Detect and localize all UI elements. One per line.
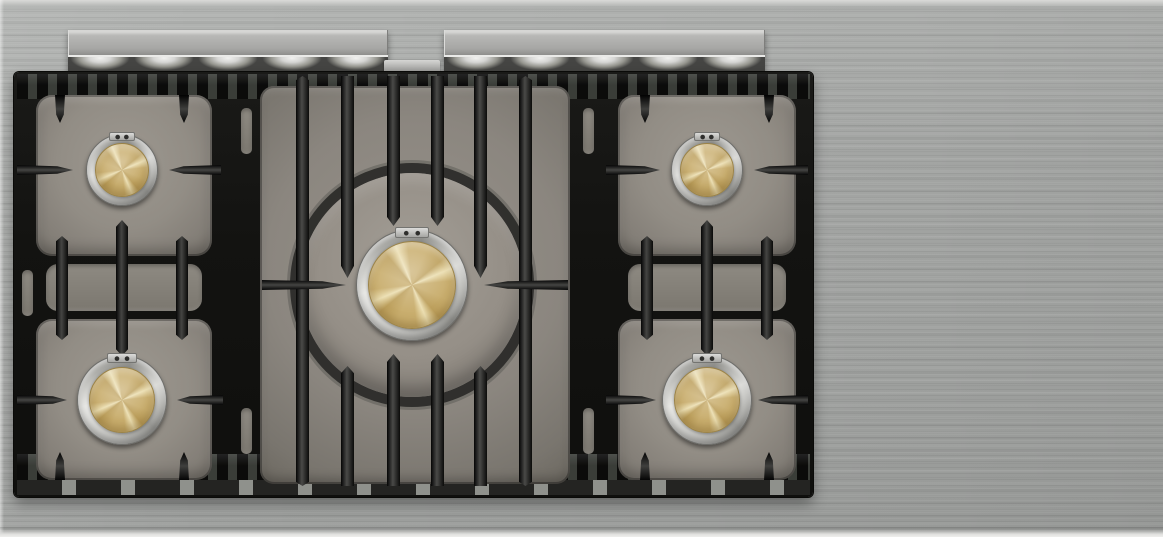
grate-slot — [583, 408, 594, 454]
grate-bar — [341, 366, 354, 486]
brass-cap — [680, 143, 734, 197]
grate-slot — [241, 408, 252, 454]
grate-bar — [474, 366, 487, 486]
left-bevel-edge — [0, 0, 4, 537]
grate-bar — [56, 236, 68, 340]
burner-cap-front-right — [662, 355, 752, 445]
grate-bar — [641, 236, 653, 340]
igniter-bracket — [395, 227, 429, 238]
bottom-bevel-edge — [0, 527, 1163, 537]
burner-cap-center — [356, 229, 468, 341]
brass-cap — [368, 241, 456, 329]
igniter-bracket — [109, 132, 135, 141]
grate-bar — [387, 76, 400, 226]
rail-scallop-edge — [444, 55, 765, 73]
rail-face — [444, 30, 765, 55]
back-rail-right — [444, 30, 765, 73]
brass-cap — [674, 367, 740, 433]
back-rail-left — [68, 30, 388, 73]
rail-face — [68, 30, 388, 55]
grate-bar — [431, 354, 444, 486]
grate-bar — [474, 76, 487, 278]
igniter-bracket — [107, 353, 137, 363]
igniter-bracket — [692, 353, 722, 363]
burner-cap-rear-left — [86, 134, 158, 206]
grate-bar — [116, 220, 128, 356]
brass-cap — [95, 143, 149, 197]
grate-slot — [241, 108, 252, 154]
burner-cap-front-left — [77, 355, 167, 445]
cooktop-photo — [0, 0, 1163, 537]
top-bevel-edge — [0, 0, 1163, 6]
grate-bar — [387, 354, 400, 486]
grate-bar — [341, 76, 354, 278]
grate-bar — [431, 76, 444, 226]
brass-cap — [89, 367, 155, 433]
grate-bar — [701, 220, 713, 356]
grate-bar — [176, 236, 188, 340]
grate-bar — [761, 236, 773, 340]
burner-cap-rear-right — [671, 134, 743, 206]
igniter-bracket — [694, 132, 720, 141]
rail-scallop-edge — [68, 55, 388, 73]
grate-slot — [583, 108, 594, 154]
grate-slot — [22, 270, 33, 316]
